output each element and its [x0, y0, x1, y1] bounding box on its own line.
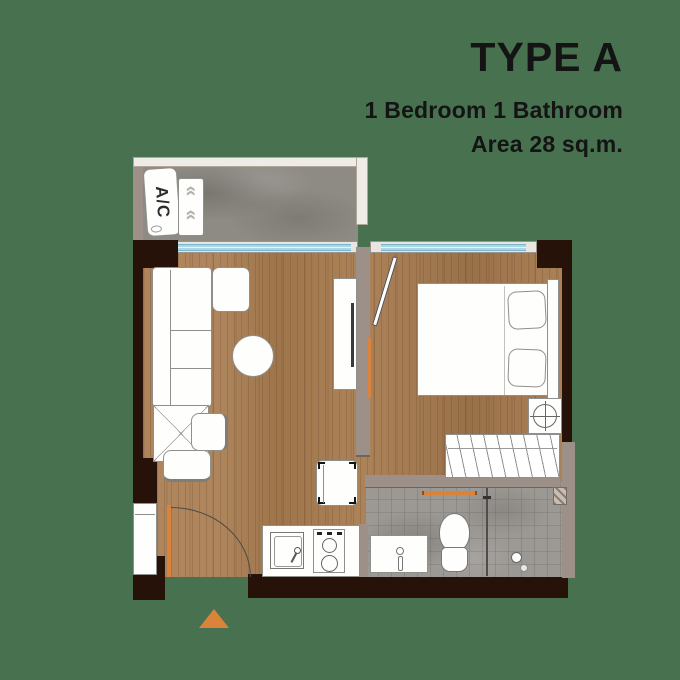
wardrobe [445, 434, 560, 478]
vanity-drain [396, 547, 404, 555]
wall-balcony-right [356, 157, 368, 225]
plan-header: TYPE A 1 Bedroom 1 Bathroom Area 28 sq.m… [365, 36, 623, 161]
washing-machine-door-line [323, 465, 324, 503]
chevron-up-icon: » [179, 179, 203, 203]
wardrobe-rail [448, 448, 557, 449]
ac-label: A/C [144, 168, 181, 236]
shower-mixer [511, 552, 522, 563]
shower-screen [486, 488, 488, 576]
sofa-back-line [170, 270, 171, 406]
entrance-arrow [199, 609, 229, 628]
type-title: TYPE A [365, 36, 623, 78]
shower-hose [520, 564, 528, 572]
dining-chair [191, 413, 228, 451]
shoe-cabinet-line [135, 514, 155, 515]
lamp-crosshair-v [545, 401, 546, 431]
washing-machine [316, 460, 358, 506]
sofa [152, 267, 212, 407]
stove [313, 529, 345, 573]
vent-shaft [553, 487, 567, 505]
towel-bar [422, 491, 477, 495]
ottoman [212, 267, 250, 312]
tv-cabinet [333, 278, 357, 390]
wall-bottom-living [248, 574, 365, 598]
toilet-base [441, 547, 468, 572]
wall-top-right-block [537, 240, 572, 268]
shoe-cabinet [133, 503, 157, 575]
dining-chair [163, 450, 211, 482]
glass-pane [167, 244, 351, 251]
bed-sheet-line [504, 286, 505, 395]
coffee-table [232, 335, 274, 377]
stove-controls [317, 532, 342, 535]
pillow [507, 348, 546, 387]
tv [351, 303, 354, 367]
shower-screen-handle [483, 496, 491, 499]
washing-machine-corner [349, 462, 356, 469]
pillow [507, 290, 547, 330]
chevron-up-icon: » [179, 203, 203, 227]
balcony-sliding-glass-door [158, 241, 358, 253]
wall-bottom-bathroom [365, 577, 568, 598]
kitchen-sink [270, 532, 304, 569]
glass-pane [381, 244, 526, 251]
bathroom-vanity [370, 535, 428, 573]
wall-right-lower [562, 442, 575, 578]
nightstand [528, 398, 562, 434]
wall-balcony-top [133, 157, 358, 167]
plan-subtitle: 1 Bedroom 1 Bathroom Area 28 sq.m. [365, 93, 623, 161]
bedroom-window [370, 241, 537, 253]
bed-headboard [547, 279, 559, 400]
washing-machine-corner [349, 497, 356, 504]
wall-top-left-block [133, 240, 178, 268]
ac-unit: A/C [143, 167, 182, 237]
sliding-door-track [368, 338, 371, 398]
toilet [438, 513, 471, 573]
stove-burner [321, 555, 338, 572]
floor-plan-page: TYPE A 1 Bedroom 1 Bathroom Area 28 sq.m… [0, 0, 680, 680]
vanity-faucet [398, 556, 403, 571]
wall-left-column [133, 458, 157, 504]
sofa-cushion-line [170, 330, 211, 331]
ac-condenser: » » [178, 178, 204, 236]
subtitle-rooms: 1 Bedroom 1 Bathroom [365, 93, 623, 127]
wall-balcony-left [133, 157, 143, 247]
sofa-cushion-line [170, 368, 211, 369]
subtitle-area: Area 28 sq.m. [365, 127, 623, 161]
wall-right [562, 268, 572, 442]
stove-burner [322, 538, 337, 553]
